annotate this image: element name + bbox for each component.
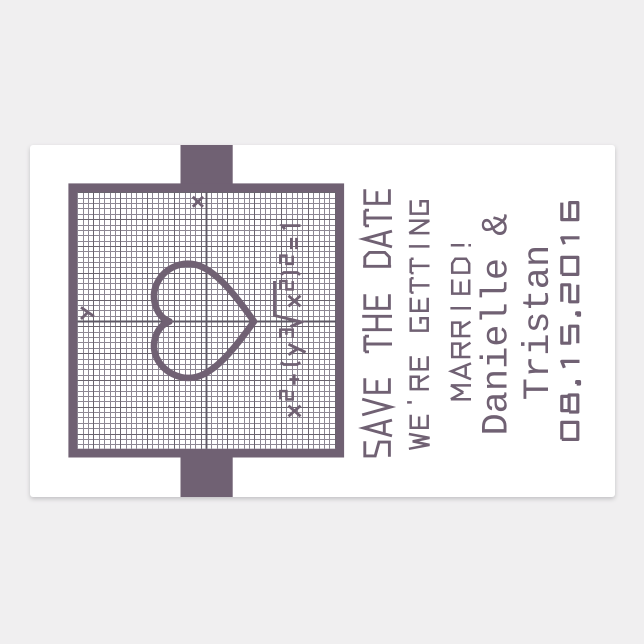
svg-text:Danielle &: Danielle & bbox=[477, 213, 519, 435]
svg-text:Tristan: Tristan bbox=[518, 245, 560, 400]
